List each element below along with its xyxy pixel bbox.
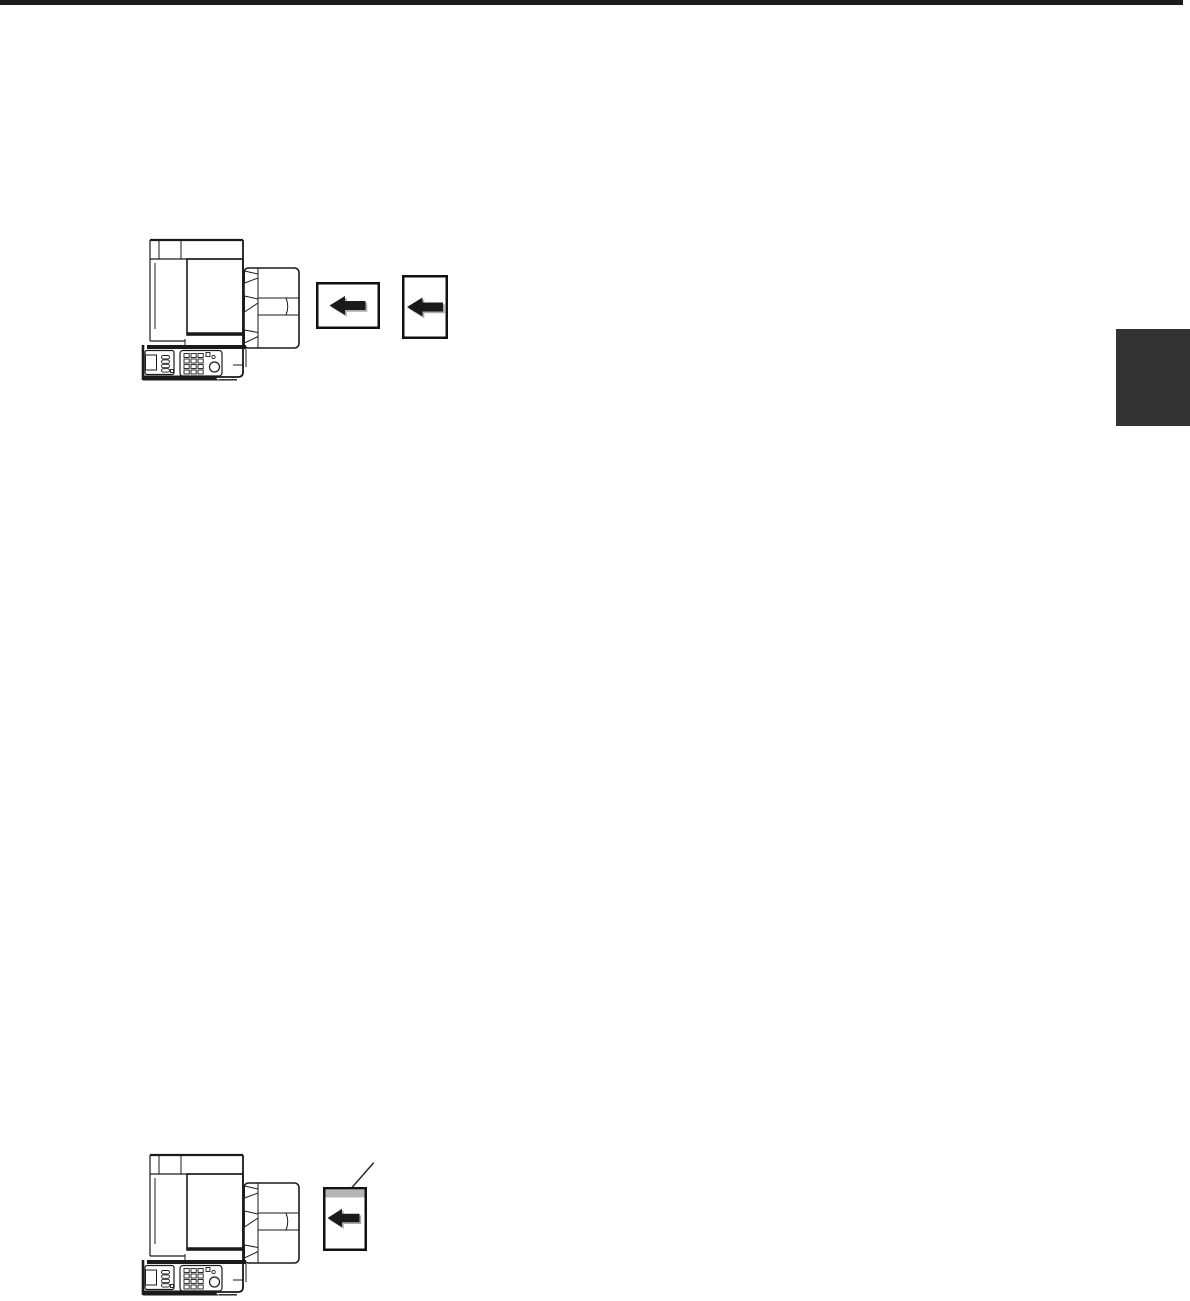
page-top-rule bbox=[0, 0, 1183, 5]
chapter-side-tab bbox=[1116, 329, 1190, 426]
manual-page bbox=[0, 0, 1190, 1301]
leading-edge-strip bbox=[326, 1190, 365, 1198]
original-card-portrait bbox=[402, 275, 448, 339]
printer-illustration bbox=[140, 1143, 305, 1299]
printer-illustration bbox=[140, 228, 305, 384]
original-card-leading-edge bbox=[323, 1187, 367, 1251]
original-card-landscape bbox=[316, 282, 380, 329]
